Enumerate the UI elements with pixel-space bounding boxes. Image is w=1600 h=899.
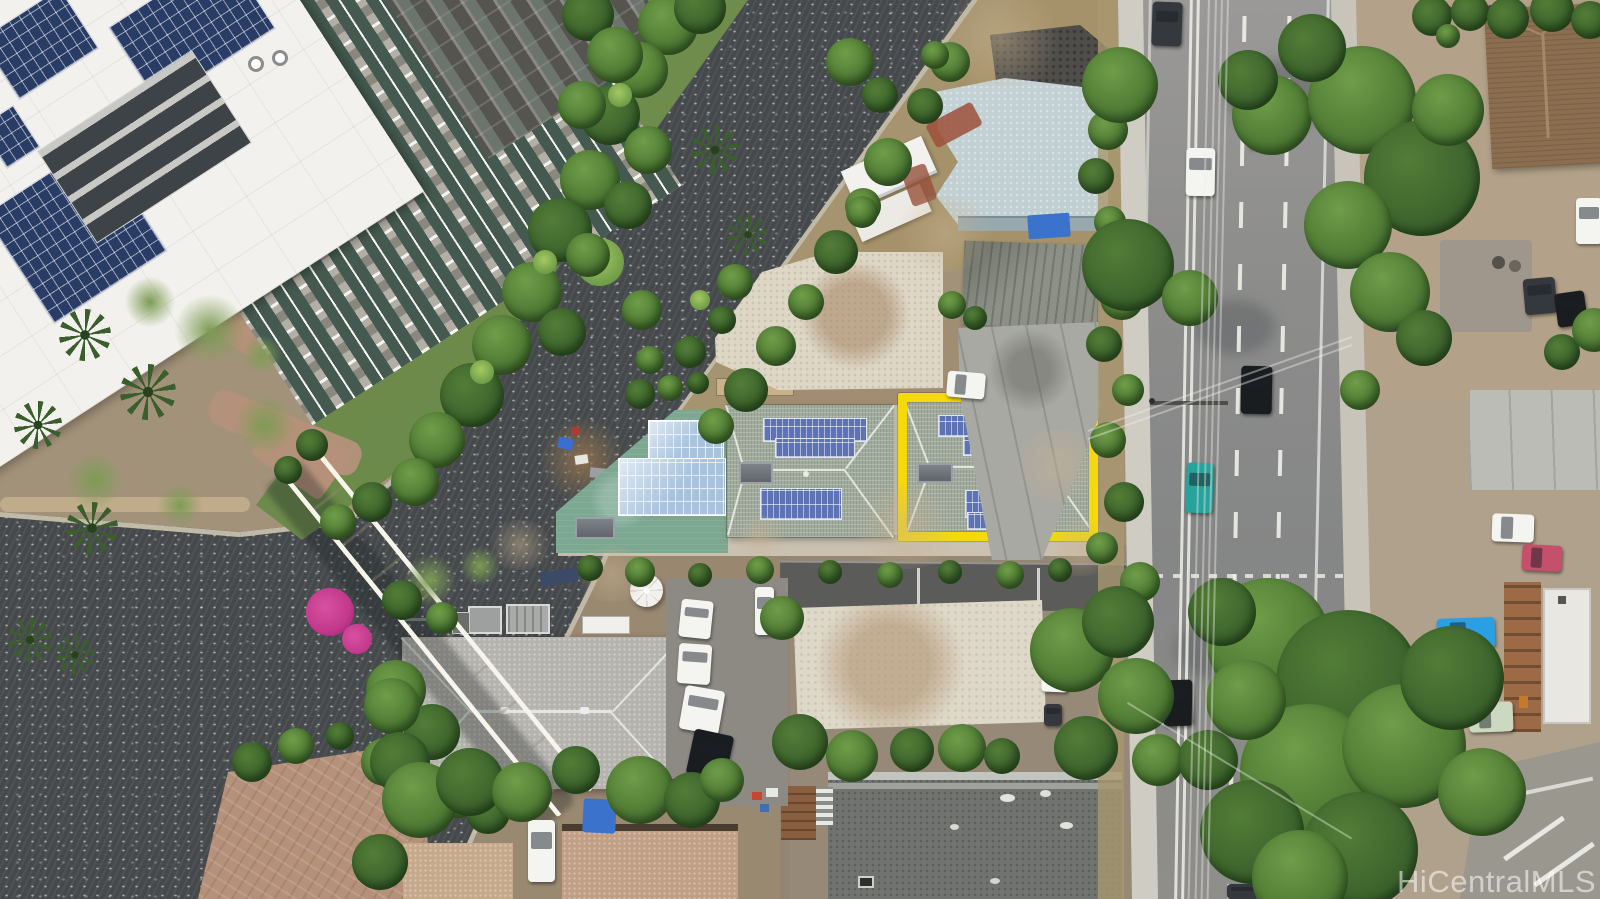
tree-canopy — [533, 250, 557, 274]
tree-canopy — [352, 482, 392, 522]
tarp-debris — [574, 454, 588, 465]
tree-canopy — [296, 429, 328, 461]
parked-car — [1151, 1, 1183, 46]
tan-shingle-roof — [562, 831, 738, 899]
parked-car — [1492, 513, 1535, 542]
yard-clutter — [766, 788, 778, 797]
roof-paint-mark — [1040, 790, 1051, 797]
tree-canopy — [1086, 326, 1122, 362]
roof-solar-array — [775, 438, 855, 458]
white-flat-roof-building — [1543, 588, 1591, 724]
tree-canopy — [1054, 716, 1118, 780]
parking-stall-line — [917, 568, 920, 604]
tree-canopy — [708, 306, 736, 334]
roof-paint-mark — [990, 878, 1000, 884]
gray-flat-roof-building — [828, 772, 1122, 899]
tree-canopy — [788, 284, 824, 320]
equipment-pad — [1440, 240, 1532, 332]
parked-car — [678, 598, 714, 639]
crossing-dotted-line — [1155, 574, 1351, 578]
roof-paint-mark — [1000, 794, 1015, 802]
yard-clutter — [760, 804, 769, 812]
palm-tree — [120, 364, 176, 420]
parked-car — [678, 685, 725, 735]
tree-canopy — [320, 504, 356, 540]
roof-heater-panel — [739, 462, 773, 484]
tree-canopy — [364, 678, 420, 734]
tree-canopy — [846, 196, 878, 228]
tree-canopy — [826, 38, 874, 86]
tree-canopy — [636, 346, 664, 374]
tree-canopy — [608, 83, 632, 107]
roof-vent — [803, 471, 809, 477]
parked-car — [1044, 704, 1062, 726]
roof-ridge — [1541, 34, 1549, 138]
tree-canopy — [1438, 748, 1526, 836]
tree-canopy — [921, 41, 949, 69]
tree-canopy — [657, 375, 683, 401]
palm-tree — [14, 401, 62, 449]
parked-car — [677, 643, 713, 685]
utility-pole — [1149, 398, 1155, 404]
white-outbuilding-roof — [582, 616, 630, 634]
tree-canopy — [1078, 158, 1114, 194]
tree-canopy — [1278, 14, 1346, 82]
tree-canopy — [938, 560, 962, 584]
tree-canopy — [552, 746, 600, 794]
tree-canopy — [1436, 24, 1460, 48]
grass-patch — [235, 395, 295, 455]
blue-tarp — [1027, 213, 1071, 240]
rooftop-equipment-box — [506, 604, 550, 634]
palm-tree — [691, 126, 739, 174]
tree-canopy — [760, 596, 804, 640]
roof-hatch — [1558, 596, 1566, 604]
building-entry — [1519, 696, 1528, 708]
parking-stall-line — [1037, 568, 1040, 604]
tree-canopy — [382, 580, 422, 620]
tree-canopy — [690, 290, 710, 310]
tree-canopy — [938, 291, 966, 319]
tree-canopy — [1396, 310, 1452, 366]
tree-canopy — [687, 372, 709, 394]
dry-grass-patch — [890, 195, 1000, 272]
tree-canopy — [877, 562, 903, 588]
tree-canopy — [558, 81, 606, 129]
tree-canopy — [772, 714, 828, 770]
deck-solar-array — [618, 458, 726, 516]
palm-tree — [55, 635, 95, 675]
tree-canopy — [907, 88, 943, 124]
tree-canopy — [1112, 374, 1144, 406]
tan-shingle-roof — [403, 843, 513, 899]
grass-patch — [175, 295, 245, 365]
tree-canopy — [232, 742, 272, 782]
tree-canopy — [1132, 734, 1184, 786]
mls-watermark: HiCentralMLS — [1397, 866, 1596, 897]
dry-grass-patch — [730, 515, 790, 557]
tree-canopy — [724, 368, 768, 412]
tree-canopy — [1206, 660, 1286, 740]
roof-stairs — [816, 787, 833, 825]
tree-canopy — [756, 326, 796, 366]
roof-vent — [580, 707, 589, 714]
tree-canopy — [963, 306, 987, 330]
parked-car — [1521, 544, 1562, 572]
tree-canopy — [604, 181, 652, 229]
tree-canopy — [864, 138, 912, 186]
tree-canopy — [814, 230, 858, 274]
tree-canopy — [674, 336, 706, 368]
tree-canopy — [624, 126, 672, 174]
tree-canopy — [688, 563, 712, 587]
parked-car — [528, 820, 555, 882]
tree-canopy — [938, 724, 986, 772]
grass-patch — [67, 452, 123, 508]
tree-canopy — [492, 762, 552, 822]
tree-canopy — [391, 458, 439, 506]
tree-canopy — [1048, 558, 1072, 582]
tree-canopy — [1400, 626, 1504, 730]
tree-canopy — [890, 728, 934, 772]
tree-canopy — [587, 27, 643, 83]
tree-canopy — [625, 379, 655, 409]
tree-canopy — [717, 264, 753, 300]
tree-canopy — [1086, 532, 1118, 564]
rooftop-vent — [248, 56, 264, 72]
grass-patch — [460, 546, 500, 586]
storage-barrel — [1492, 256, 1505, 269]
tree-canopy — [352, 834, 408, 890]
tree-canopy — [278, 728, 314, 764]
palm-tree — [59, 309, 111, 361]
tree-canopy — [625, 557, 655, 587]
rooftop-vent — [272, 50, 288, 66]
tree-canopy — [606, 756, 674, 824]
tree-canopy — [698, 408, 734, 444]
roof-paint-mark — [1060, 822, 1073, 829]
tree-canopy — [862, 77, 898, 113]
bougainvillea — [342, 624, 372, 654]
tree-canopy — [1082, 586, 1154, 658]
tree-canopy — [826, 730, 878, 782]
tree-canopy — [996, 561, 1024, 589]
tree-canopy — [577, 555, 603, 581]
palm-tree — [66, 502, 118, 554]
roof-parapet — [828, 783, 1122, 789]
tree-canopy — [1082, 219, 1174, 311]
tree-canopy — [1340, 370, 1380, 410]
grass-patch — [125, 277, 175, 327]
dry-grass-patch — [845, 485, 965, 569]
tree-canopy — [622, 290, 662, 330]
tarp-debris — [571, 427, 580, 435]
roof-paint-mark — [950, 824, 959, 830]
rooftop-equipment-box — [468, 606, 502, 634]
tree-canopy — [426, 602, 458, 634]
roof-grate — [858, 876, 874, 888]
tree-canopy — [326, 722, 354, 750]
palm-tree — [728, 215, 768, 255]
grass-patch — [242, 335, 282, 375]
grass-patch — [158, 483, 202, 527]
basin-sand-edge — [0, 497, 250, 512]
tree-canopy — [1412, 74, 1484, 146]
tree-canopy — [746, 556, 774, 584]
tree-canopy — [700, 758, 744, 802]
tree-canopy — [538, 308, 586, 356]
tree-canopy — [274, 456, 302, 484]
tree-canopy — [1082, 47, 1158, 123]
deck-heater-panel — [575, 517, 615, 539]
yard-clutter — [752, 792, 762, 800]
aerial-photo: HiCentralMLS — [0, 0, 1600, 899]
tree-canopy — [1104, 482, 1144, 522]
roof-solar-array — [760, 488, 842, 520]
concrete-pad — [1470, 390, 1600, 490]
storage-barrel — [1509, 260, 1521, 272]
tree-canopy — [566, 233, 610, 277]
parked-car — [1522, 277, 1557, 316]
tree-canopy — [818, 560, 842, 584]
tree-canopy — [1188, 578, 1256, 646]
tree-canopy — [984, 738, 1020, 774]
palm-tree — [8, 618, 52, 662]
tree-canopy — [470, 360, 494, 384]
parked-car — [1576, 198, 1600, 244]
parked-car — [946, 370, 986, 399]
